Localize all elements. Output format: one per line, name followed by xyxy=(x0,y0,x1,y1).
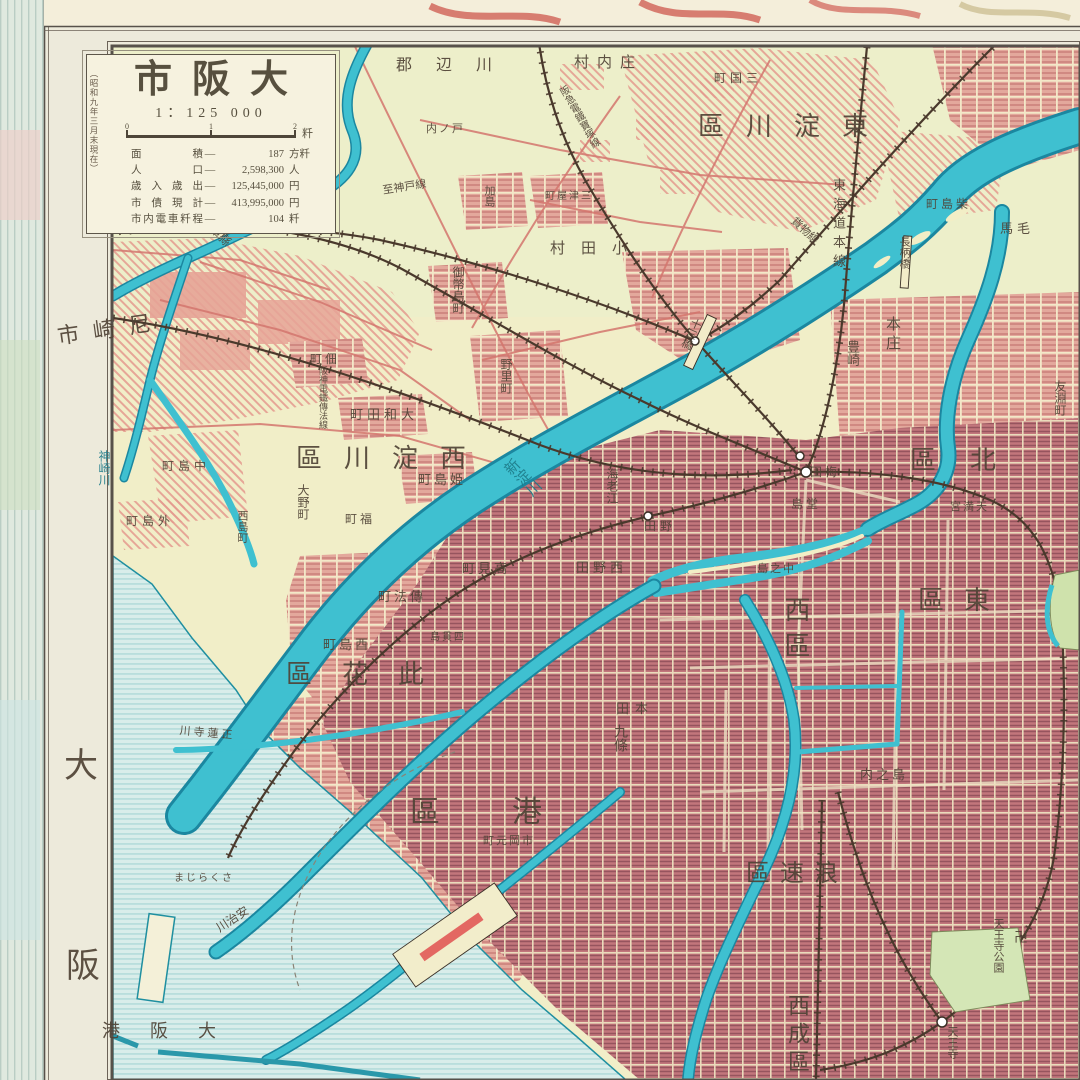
title-box: （昭和九年三月末現在） 市阪大 1：125 000 012 粁 面積—187方粁… xyxy=(86,54,336,234)
stat-dash: — xyxy=(203,179,217,195)
stat-unit: 粁 xyxy=(284,212,317,228)
adjacent-sheet-top xyxy=(44,0,1080,31)
stats-row: 市内電車粁程—104粁 xyxy=(131,212,317,228)
stat-unit: 円 xyxy=(284,196,317,212)
scale-tick xyxy=(210,130,212,138)
umeda-station xyxy=(796,452,804,460)
stats-row: 市債現計—413,995,000円 xyxy=(131,196,317,212)
stat-dash: — xyxy=(203,147,217,163)
stat-dash: — xyxy=(203,196,217,212)
scale-text: 1：125 000 xyxy=(87,102,335,122)
stat-dash: — xyxy=(203,212,217,228)
noda-station xyxy=(644,512,652,520)
stat-unit: 人 xyxy=(284,163,317,179)
stat-label: 市債現計 xyxy=(131,196,203,212)
scale-tick-number: 2 xyxy=(293,122,297,131)
stat-label: 歳入歳出 xyxy=(131,179,203,195)
stats-row: 面積—187方粁 xyxy=(131,147,317,163)
stats-row: 歳入歳出—125,445,000円 xyxy=(131,179,317,195)
stat-unit: 円 xyxy=(284,179,317,195)
map-sheet: （昭和九年三月末現在） 市阪大 1：125 000 012 粁 面積—187方粁… xyxy=(0,0,1080,1080)
stat-label: 人口 xyxy=(131,163,203,179)
scale-tick-number: 0 xyxy=(125,122,129,131)
adjacent-sheet-left xyxy=(0,0,49,1080)
stats-row: 人口—2,598,300人 xyxy=(131,163,317,179)
canal-nagahori xyxy=(796,686,898,688)
city-statistics: 面積—187方粁人口—2,598,300人歳入歳出—125,445,000円市債… xyxy=(131,147,335,228)
stat-value: 413,995,000 xyxy=(217,196,284,212)
stat-unit: 方粁 xyxy=(284,147,317,163)
stat-value: 104 xyxy=(217,212,284,228)
scale-tick xyxy=(126,130,128,138)
juso-station xyxy=(691,337,699,345)
map-sheet-title: 市阪大 xyxy=(87,61,335,101)
tennoji-station xyxy=(937,1017,947,1027)
survey-date-note: （昭和九年三月末現在） xyxy=(88,69,100,174)
scale-tick-number: 1 xyxy=(209,122,213,131)
stat-dash: — xyxy=(203,163,217,179)
scale-bar: 012 粁 xyxy=(127,124,295,140)
stat-value: 2,598,300 xyxy=(217,163,284,179)
stat-label: 面積 xyxy=(131,147,203,163)
stat-label: 市内電車粁程 xyxy=(131,212,203,228)
osaka-station xyxy=(801,467,811,477)
stat-value: 187 xyxy=(217,147,284,163)
scale-unit: 粁 xyxy=(302,125,313,141)
stat-value: 125,445,000 xyxy=(217,179,284,195)
scale-tick xyxy=(294,130,296,138)
